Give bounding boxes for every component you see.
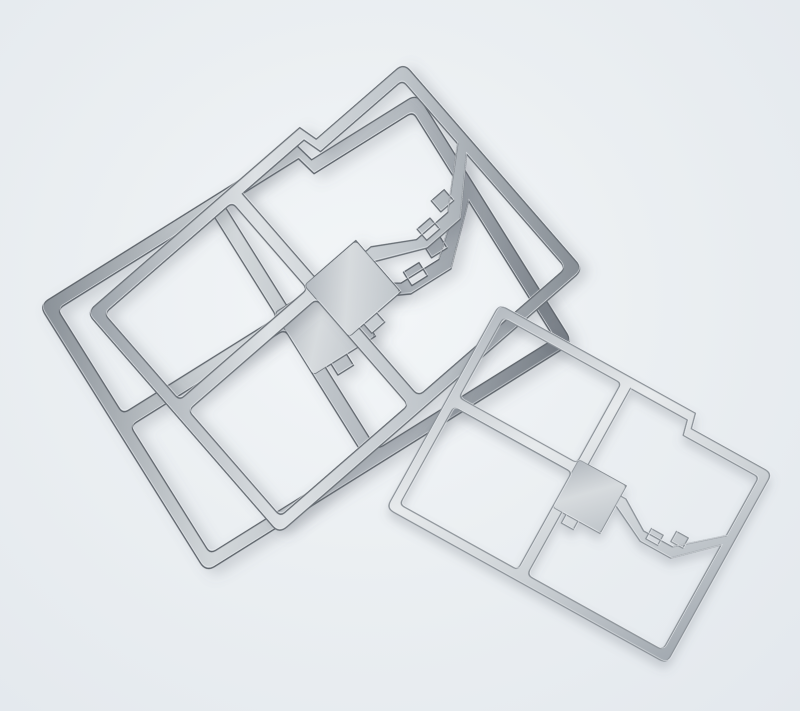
shield-frame-right [387,304,781,664]
shield-frame-front-left [86,47,583,534]
parts-layer [39,47,781,664]
shield-frames-photo [0,0,800,711]
photo-stage [0,0,800,711]
